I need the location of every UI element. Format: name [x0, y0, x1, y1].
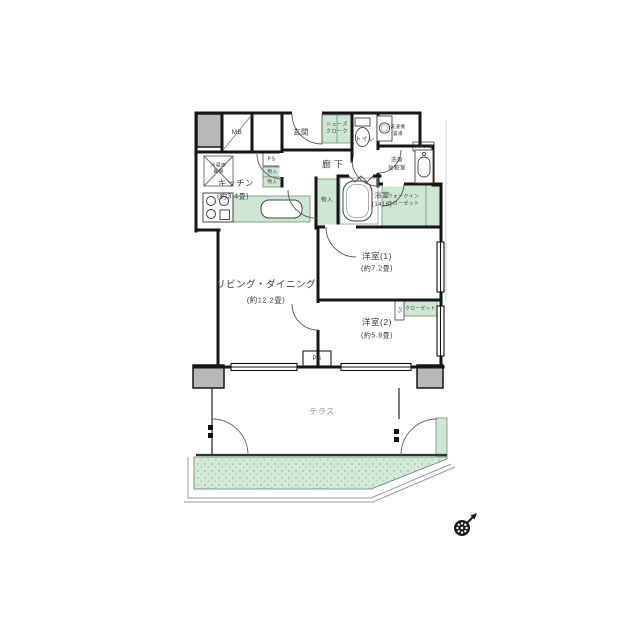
label-bedroom2: 洋室(2) — [362, 318, 392, 327]
label-kitchen-storage-2: 物入 — [268, 180, 278, 185]
label-kitchen-storage-1: 物入 — [268, 170, 278, 175]
label-living-dining: リビング・ダイニング — [216, 280, 316, 290]
label-hallway: 廊下 — [322, 161, 346, 170]
label-kitchen: キッチン — [218, 179, 254, 188]
label-ps-bottom: PS — [312, 356, 321, 362]
label-kitchen-size: (約3.4畳) — [217, 193, 249, 200]
label-shoes-closet-line2: クローク — [326, 129, 348, 134]
floorplan-drawing — [0, 0, 640, 639]
label-shoes-closet-line1: シューズ — [326, 122, 348, 127]
label-closet: クローゼット — [405, 306, 436, 311]
label-entrance: 玄関 — [293, 128, 309, 136]
label-toilet: トイレ — [355, 137, 375, 143]
label-ps-bedroom: PS — [397, 307, 401, 313]
floorplan-image: MB 玄関 シューズ クローク トイレ 洗濯機 置場 リネン庫 洗面 化粧室 廊… — [0, 0, 640, 639]
label-bedroom1: 洋室(1) — [362, 252, 392, 261]
vanity-unit — [415, 150, 433, 183]
label-ps-kitchen: PS — [268, 157, 276, 162]
label-bedroom1-size: (約7.2畳) — [361, 266, 393, 273]
label-meter-box: MB — [232, 130, 243, 137]
label-terrace: テラス — [309, 408, 334, 416]
label-wic-line2: クローゼット — [388, 202, 420, 207]
label-powder-room-line2: 化粧室 — [388, 166, 406, 172]
label-hall-storage: 物入 — [321, 198, 333, 204]
label-fridge-line2: 置場 — [213, 170, 224, 175]
label-laundry-line1: 洗濯機 — [391, 125, 406, 130]
label-powder-room-line1: 洗面 — [391, 158, 403, 164]
label-wic-line1: ウォークイン — [388, 195, 420, 200]
label-living-dining-size: (約12.2畳) — [247, 296, 286, 304]
label-linen-closet: リネン庫 — [414, 144, 434, 149]
label-bedroom2-size: (約5.8畳) — [361, 333, 393, 340]
label-laundry-line2: 置場 — [393, 131, 403, 136]
